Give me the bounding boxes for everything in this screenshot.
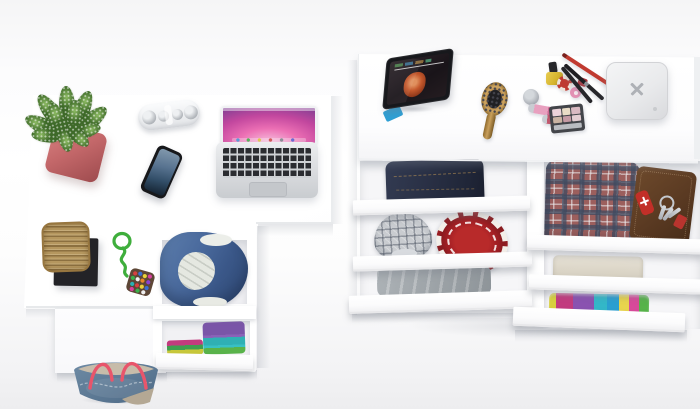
desk-shadow [26,309,56,318]
tablet-screen [386,53,449,106]
speaker-grille-icon [183,105,199,121]
desk-shadow [257,226,270,368]
red-key-fob [673,214,688,230]
drawer-front [156,353,253,371]
speaker-grille-icon [141,110,157,126]
dresser-side-edge [694,57,700,159]
leather-wallet [629,166,698,247]
cubby-shelf [153,306,256,319]
brush-handle [482,112,496,140]
brush-head [478,80,511,119]
pocket-knife [634,189,655,216]
box-button [653,107,657,111]
laptop [216,106,318,200]
tablet-on-stand [374,46,468,132]
cosmetic-jar [523,89,539,105]
laptop-screen [221,106,317,145]
drawer-shadow [515,330,687,342]
laptop-body [216,142,318,198]
desk-drawer-unit [153,214,256,372]
desk-edge [331,96,333,223]
desk-edge [256,222,333,224]
potted-plant [33,86,117,190]
laptop-menubar [223,108,315,111]
denim-jacket [160,232,248,308]
laptop-trackpad [249,182,287,197]
drawer-shadow [352,313,534,323]
makeup-set [518,56,604,138]
eyeshadow-palette [549,103,586,133]
jacket-lining [178,252,215,290]
tartan-shirt [544,160,640,246]
laptop-keyboard [223,148,311,178]
folded-shirt [200,234,232,246]
eyeshadow-pans [552,107,581,124]
tote-bag: Denim tote bag with red straps on the fl… [64,352,168,408]
scene: Green cord keychain with multicolor bead… [0,0,700,409]
basket-on-tray [42,220,106,292]
folded-clothes-stack [202,321,245,354]
wicker-basket [41,221,91,273]
speaker-seam [164,105,173,126]
desk-shadow [333,96,343,224]
floor-shadow [347,60,357,315]
jewelry-box [606,62,668,120]
palette-mirror [554,123,582,131]
keychain-pouch: Green cord keychain with multicolor bead… [104,230,160,296]
tablet [382,48,454,110]
speaker-grille-icon [171,108,183,120]
